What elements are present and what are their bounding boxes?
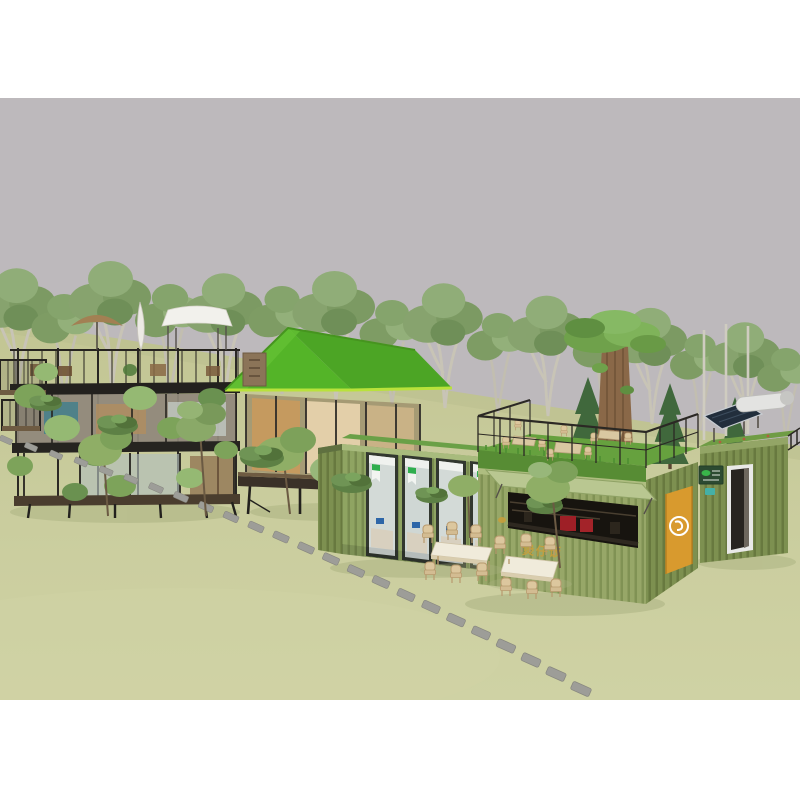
utility-door: [727, 464, 753, 554]
cabin-sign-board: [243, 353, 266, 386]
dining-set-b: [495, 534, 562, 599]
page-canvas: 煲仔饭: [0, 0, 800, 800]
render-photo: 煲仔饭: [0, 98, 800, 700]
info-chip: [705, 488, 715, 495]
scene-svg: 煲仔饭: [0, 98, 800, 700]
